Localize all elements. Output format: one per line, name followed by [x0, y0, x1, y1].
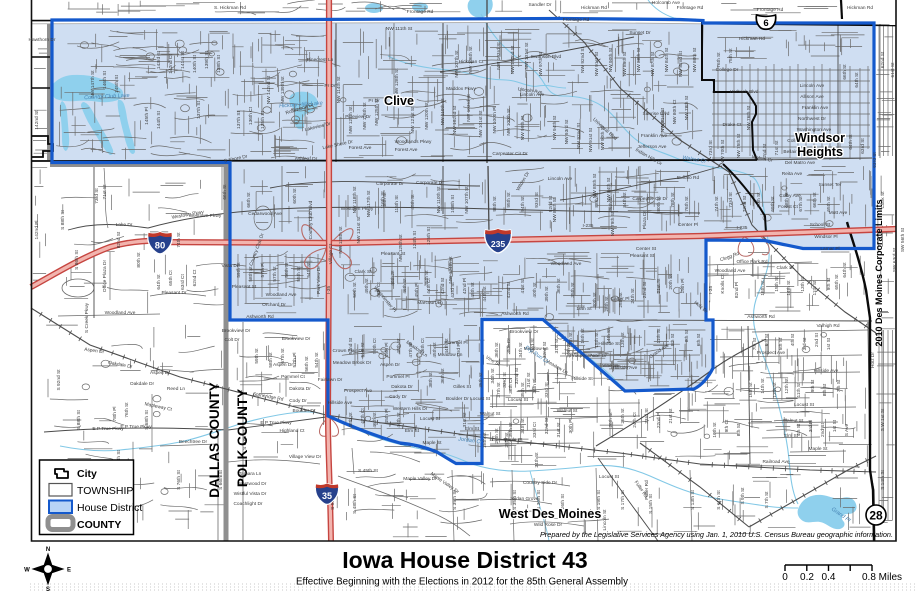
svg-text:Valhigh Rd: Valhigh Rd [816, 323, 839, 329]
svg-text:63rd St: 63rd St [860, 138, 866, 154]
svg-text:Drake Ct: Drake Ct [723, 122, 743, 128]
svg-text:74th St: 74th St [714, 196, 720, 212]
svg-text:140th St: 140th St [192, 54, 198, 73]
svg-text:62nd Ct: 62nd Ct [192, 269, 198, 286]
svg-text:Woodland Ave: Woodland Ave [105, 310, 136, 316]
svg-text:NW 78th St: NW 78th St [684, 95, 690, 120]
svg-text:0: 0 [782, 572, 788, 583]
svg-text:Pleasant St: Pleasant St [232, 284, 257, 290]
svg-text:86th St: 86th St [608, 196, 614, 212]
svg-text:Franklin Ave: Franklin Ave [802, 105, 829, 111]
svg-text:Ashworth Rd: Ashworth Rd [501, 311, 529, 317]
svg-text:I-235: I-235 [583, 223, 594, 229]
svg-text:Woodland Ave: Woodland Ave [266, 292, 297, 298]
svg-text:44th St: 44th St [482, 286, 488, 302]
svg-text:1st St: 1st St [826, 337, 832, 350]
svg-text:NW 93rd St: NW 93rd St [564, 119, 570, 144]
svg-text:15th St: 15th St [594, 332, 600, 348]
svg-text:43rd St: 43rd St [450, 282, 456, 298]
svg-text:S 45th St: S 45th St [358, 468, 378, 474]
svg-text:POLK COUNTY: POLK COUNTY [235, 389, 250, 487]
svg-text:S 48th St: S 48th St [352, 493, 358, 513]
svg-text:Coachlight Dr: Coachlight Dr [233, 501, 262, 507]
svg-text:135th St: 135th St [260, 110, 266, 129]
svg-text:35th Ct: 35th Ct [506, 338, 512, 354]
svg-text:NW 107th St: NW 107th St [454, 50, 460, 78]
svg-text:20th St: 20th St [668, 274, 674, 290]
svg-text:50th Ct: 50th Ct [372, 338, 378, 354]
svg-text:S. Hickman Rd: S. Hickman Rd [214, 5, 246, 11]
svg-text:66th St: 66th St [222, 184, 228, 200]
svg-text:Highland Ct: Highland Ct [279, 428, 305, 434]
svg-text:32nd St: 32nd St [514, 367, 520, 384]
svg-text:28: 28 [869, 509, 883, 523]
svg-text:S 76th St: S 76th St [176, 469, 182, 489]
svg-text:Corporate Dr: Corporate Dr [416, 180, 444, 186]
svg-text:Clark St: Clark St [776, 265, 794, 271]
svg-text:E P True Pkwy: E P True Pkwy [260, 420, 292, 426]
svg-text:NW 90th St: NW 90th St [608, 47, 614, 72]
svg-text:Aspen Dr: Aspen Dr [380, 362, 400, 368]
svg-text:80th St: 80th St [656, 196, 662, 212]
svg-text:24th St: 24th St [534, 452, 540, 468]
svg-text:64th St: 64th St [854, 72, 860, 88]
svg-text:125th St: 125th St [426, 226, 432, 245]
svg-text:11th St: 11th St [796, 382, 802, 398]
svg-text:Dakota Dr: Dakota Dr [391, 384, 413, 390]
svg-text:57th St: 57th St [272, 266, 278, 282]
svg-text:50th St: 50th St [352, 282, 358, 298]
svg-text:34th Pl: 34th Pl [532, 379, 538, 394]
svg-text:Walnut St: Walnut St [557, 408, 578, 414]
svg-text:65th St: 65th St [834, 274, 840, 290]
svg-text:19th Pl: 19th Pl [680, 279, 686, 294]
svg-text:Brookview Dr: Brookview Dr [510, 329, 539, 335]
svg-text:Plaza Dr: Plaza Dr [642, 210, 648, 229]
svg-text:Prospect Ave: Prospect Ave [344, 388, 373, 394]
svg-text:NW 87th St: NW 87th St [650, 51, 656, 76]
svg-text:S W 1st St: S W 1st St [880, 408, 886, 431]
svg-text:51st St: 51st St [360, 342, 366, 358]
svg-text:143rd St: 143rd St [156, 50, 162, 69]
svg-text:W: W [24, 568, 30, 574]
svg-text:SW 63rd St: SW 63rd St [892, 247, 898, 272]
svg-text:Frontage Rd: Frontage Rd [677, 5, 704, 11]
svg-text:146th St: 146th St [102, 70, 108, 89]
svg-text:33rd St: 33rd St [502, 372, 508, 388]
svg-text:10th St: 10th St [712, 422, 718, 438]
svg-text:16th St: 16th St [580, 328, 586, 344]
svg-text:Lincoln Ave: Lincoln Ave [800, 83, 825, 89]
svg-text:Gilles St: Gilles St [453, 384, 472, 390]
svg-text:142nd Ct: 142nd Ct [168, 54, 174, 74]
svg-text:137th St: 137th St [196, 100, 202, 119]
svg-text:31st St: 31st St [556, 422, 562, 438]
svg-text:Sunset Ter: Sunset Ter [819, 182, 842, 188]
svg-text:Dakota Dr: Dakota Dr [289, 386, 311, 392]
svg-text:34th St: 34th St [520, 418, 526, 434]
svg-text:73rd St: 73rd St [728, 192, 734, 208]
svg-text:Del Matro Ave: Del Matro Ave [785, 160, 815, 166]
svg-text:Hillside Ave: Hillside Ave [814, 368, 839, 374]
svg-text:42nd St: 42nd St [506, 281, 512, 298]
svg-text:Hawthorn Dr: Hawthorn Dr [29, 37, 56, 43]
svg-text:43rd Pl: 43rd Pl [456, 342, 462, 357]
svg-text:2nd St: 2nd St [820, 422, 826, 437]
svg-text:33rd St: 33rd St [544, 382, 550, 398]
svg-text:13th St: 13th St [800, 276, 806, 292]
svg-text:2nd St: 2nd St [814, 332, 820, 347]
svg-text:S 9th St: S 9th St [740, 487, 746, 505]
svg-text:Lincoln St: Lincoln St [602, 509, 608, 531]
svg-text:Western Hills Dr: Western Hills Dr [393, 406, 428, 412]
svg-text:NW 139th St: NW 139th St [280, 76, 286, 104]
svg-text:Carpenter Cir Dr: Carpenter Cir Dr [632, 196, 668, 202]
svg-text:6th St: 6th St [696, 333, 702, 346]
svg-text:Wild Rose Dr: Wild Rose Dr [534, 522, 563, 528]
svg-text:Northwest Dr: Northwest Dr [798, 116, 826, 122]
svg-text:Windsor: Windsor [795, 131, 845, 145]
svg-text:66th St: 66th St [246, 192, 252, 208]
svg-text:0.2: 0.2 [800, 572, 814, 583]
svg-text:NW 119th St: NW 119th St [440, 98, 446, 126]
svg-text:Knolls Ct: Knolls Ct [720, 274, 726, 294]
svg-text:NW 142nd St: NW 142nd St [266, 75, 272, 104]
svg-text:E: E [67, 568, 71, 574]
svg-text:NW 94th St: NW 94th St [552, 115, 558, 140]
svg-text:Pr Dr: Pr Dr [324, 83, 336, 89]
svg-text:64th St: 64th St [156, 274, 162, 290]
svg-text:I-35: I-35 [326, 286, 332, 295]
svg-text:S 13th St: S 13th St [690, 489, 696, 509]
svg-text:Ashleaf Dr: Ashleaf Dr [295, 156, 318, 162]
svg-text:Prepared by the Legislative Se: Prepared by the Legislative Services Age… [540, 530, 893, 539]
svg-text:48th St: 48th St [348, 412, 354, 428]
svg-text:Village Ct: Village Ct [328, 243, 334, 264]
svg-text:Maple St: Maple St [809, 446, 829, 452]
svg-text:74th St: 74th St [176, 232, 182, 248]
svg-text:34th St: 34th St [490, 368, 496, 384]
svg-text:95th St: 95th St [506, 192, 512, 208]
svg-text:S 11th St: S 11th St [716, 490, 722, 510]
svg-text:15th St: 15th St [774, 276, 780, 292]
svg-text:NW 88th St: NW 88th St [636, 47, 642, 72]
svg-text:Fairlawn Dr: Fairlawn Dr [318, 377, 343, 383]
svg-text:Village View Dr: Village View Dr [289, 454, 322, 460]
svg-text:Office Plaza Dr: Office Plaza Dr [102, 260, 108, 293]
svg-text:Locust St: Locust St [794, 402, 815, 408]
svg-text:S 17th St: S 17th St [620, 489, 626, 509]
svg-text:54th St: 54th St [306, 262, 312, 278]
svg-text:93rd St: 93rd St [534, 192, 540, 208]
svg-text:42nd Pl: 42nd Pl [462, 278, 468, 294]
svg-text:137th St: 137th St [236, 110, 242, 129]
svg-text:0.4: 0.4 [822, 572, 836, 583]
svg-text:Maddox Pkwy: Maddox Pkwy [446, 86, 476, 92]
svg-text:Swanson Blvd: Swanson Blvd [531, 54, 562, 60]
svg-text:57th St: 57th St [280, 348, 286, 364]
svg-text:NW 101st St: NW 101st St [524, 42, 530, 70]
svg-text:Sunset Dr: Sunset Dr [629, 30, 651, 36]
svg-text:26th St: 26th St [608, 412, 614, 428]
svg-text:115th St: 115th St [394, 195, 400, 213]
svg-text:NW 84th St: NW 84th St [664, 47, 670, 72]
svg-text:Pommel Pl: Pommel Pl [386, 374, 409, 380]
svg-text:S 92nd St: S 92nd St [56, 369, 62, 391]
svg-text:41st St: 41st St [520, 278, 526, 294]
svg-text:Center St: Center St [636, 246, 657, 252]
svg-text:Pleasant St: Pleasant St [630, 253, 655, 259]
svg-text:Frontage Rd: Frontage Rd [407, 9, 434, 15]
svg-text:Cedarwood Ave: Cedarwood Ave [248, 211, 282, 217]
svg-text:38th St: 38th St [428, 372, 434, 388]
svg-text:145th St: 145th St [114, 74, 120, 93]
svg-text:11th St: 11th St [656, 328, 662, 344]
svg-text:Hickman Rd: Hickman Rd [847, 5, 873, 11]
svg-text:Hillside Ave: Hillside Ave [328, 400, 353, 406]
svg-text:Hickman Rd: Hickman Rd [581, 5, 607, 11]
svg-text:32nd St: 32nd St [544, 417, 550, 434]
svg-text:44th St: 44th St [396, 412, 402, 428]
svg-text:8th St: 8th St [684, 329, 690, 342]
svg-text:63rd Ct: 63rd Ct [180, 273, 186, 289]
svg-text:21st St: 21st St [668, 408, 674, 424]
svg-text:75th St: 75th St [728, 48, 734, 64]
svg-text:Aspen Dr: Aspen Dr [150, 370, 170, 376]
svg-text:Locust St: Locust St [599, 474, 620, 480]
svg-text:Holcomb Ave: Holcomb Ave [652, 0, 681, 6]
svg-text:142nd Pl: 142nd Pl [34, 221, 40, 240]
svg-text:NW 106th St: NW 106th St [468, 46, 474, 74]
svg-text:I-235: I-235 [737, 225, 748, 231]
svg-text:NW 99th St: NW 99th St [520, 115, 526, 140]
svg-text:Lake Dr: Lake Dr [116, 222, 133, 228]
svg-text:56th St: 56th St [284, 262, 290, 278]
svg-text:I-35: I-35 [708, 286, 714, 295]
svg-text:22nd St: 22nd St [642, 281, 648, 298]
svg-text:76th St: 76th St [124, 402, 130, 418]
svg-text:145th Pl: 145th Pl [144, 107, 150, 125]
svg-text:DALLAS COUNTY: DALLAS COUNTY [207, 382, 222, 498]
svg-text:46th St: 46th St [402, 278, 408, 294]
svg-text:84th St: 84th St [622, 192, 628, 208]
svg-text:Frontage Rd: Frontage Rd [563, 17, 590, 23]
svg-text:36th Ct: 36th Ct [508, 378, 514, 394]
svg-text:16th St: 16th St [760, 280, 766, 296]
svg-text:9th St: 9th St [826, 277, 832, 290]
svg-text:8th St: 8th St [822, 383, 828, 396]
svg-text:Center Pl: Center Pl [678, 222, 698, 228]
svg-text:NW 81st St: NW 81st St [660, 107, 666, 132]
svg-text:35th St: 35th St [508, 422, 514, 438]
svg-text:235: 235 [491, 239, 506, 249]
svg-text:23rd St: 23rd St [644, 408, 650, 424]
svg-text:S 86th St: S 86th St [74, 249, 80, 269]
svg-text:78th Pl: 78th Pl [112, 407, 118, 422]
svg-text:Office Park Rd: Office Park Rd [736, 259, 767, 265]
svg-text:28th St: 28th St [482, 432, 488, 448]
svg-text:88th St: 88th St [594, 192, 600, 208]
svg-text:S 88th St: S 88th St [60, 209, 66, 229]
svg-text:35: 35 [322, 491, 332, 501]
svg-text:55th St: 55th St [296, 266, 302, 282]
svg-text:31st St: 31st St [554, 338, 560, 354]
svg-text:25th St: 25th St [620, 408, 626, 424]
svg-text:31st St: 31st St [526, 372, 532, 388]
svg-text:S 68th St: S 68th St [144, 409, 150, 429]
svg-text:3rd St: 3rd St [802, 337, 808, 350]
svg-text:NW 103rd St: NW 103rd St [466, 94, 472, 122]
svg-text:108th St: 108th St [450, 194, 456, 213]
svg-text:Boulder Dr: Boulder Dr [293, 408, 316, 414]
svg-text:6th St: 6th St [764, 333, 770, 346]
svg-text:S 14th St: S 14th St [880, 469, 886, 489]
svg-text:Reita Ave: Reita Ave [782, 171, 803, 177]
svg-text:47th Ct: 47th Ct [360, 408, 366, 424]
svg-text:NW 124th St: NW 124th St [448, 256, 454, 284]
svg-text:94th St: 94th St [520, 196, 526, 212]
svg-text:14th St: 14th St [786, 280, 792, 296]
svg-text:Railroad Ave: Railroad Ave [762, 459, 789, 465]
svg-text:Colt Dr: Colt Dr [225, 337, 240, 343]
svg-text:NW 97th St: NW 97th St [538, 51, 544, 76]
svg-text:NW 107th St: NW 107th St [464, 186, 470, 214]
svg-text:NW 76th St: NW 76th St [746, 105, 752, 130]
svg-text:NW 125th St: NW 125th St [398, 234, 404, 262]
svg-text:67th St: 67th St [798, 196, 804, 212]
svg-text:139th St: 139th St [204, 50, 210, 69]
svg-text:45th Pl: 45th Pl [414, 283, 420, 298]
svg-text:36th St: 36th St [440, 368, 446, 384]
svg-text:58th St: 58th St [248, 266, 254, 282]
svg-text:Locust St: Locust St [420, 416, 441, 422]
svg-text:NW 92nd St: NW 92nd St [580, 46, 586, 73]
svg-text:Windsor Pl: Windsor Pl [814, 234, 837, 240]
svg-text:144th St: 144th St [156, 110, 162, 129]
svg-text:0.8 Miles: 0.8 Miles [862, 572, 902, 583]
svg-text:69th St: 69th St [770, 196, 776, 212]
svg-text:63rd St: 63rd St [872, 152, 878, 168]
svg-text:14th St: 14th St [606, 328, 612, 344]
svg-text:73rd St: 73rd St [94, 188, 100, 204]
svg-text:35th St: 35th St [478, 372, 484, 388]
svg-text:64th St: 64th St [848, 134, 854, 150]
svg-text:S Creek Pkwy: S Creek Pkwy [84, 302, 90, 333]
svg-text:NW 111th St: NW 111th St [386, 26, 413, 32]
svg-text:49th St: 49th St [364, 278, 370, 294]
svg-text:NW 102nd St: NW 102nd St [452, 105, 458, 134]
svg-text:Franklin Ave: Franklin Ave [641, 133, 668, 139]
svg-text:16th St: 16th St [748, 382, 754, 398]
svg-text:54th St: 54th St [314, 352, 320, 368]
svg-text:Effective Beginning with the E: Effective Beginning with the Elections i… [296, 577, 628, 588]
svg-text:Oakdale Dr: Oakdale Dr [130, 381, 155, 387]
svg-text:57th Pl: 57th Pl [260, 263, 266, 278]
svg-text:76th St: 76th St [684, 196, 690, 212]
svg-text:NW 128th St: NW 128th St [338, 226, 344, 254]
svg-text:NW 75th St: NW 75th St [736, 133, 742, 158]
svg-text:68th St: 68th St [784, 192, 790, 208]
svg-text:45th St: 45th St [410, 194, 416, 210]
svg-text:Pinecrest Ln: Pinecrest Ln [307, 57, 334, 63]
svg-text:28th St: 28th St [604, 296, 610, 312]
svg-text:49th Pl: 49th Pl [384, 343, 390, 358]
svg-text:30th St: 30th St [592, 292, 598, 308]
svg-text:45th Pl: 45th Pl [384, 409, 390, 424]
svg-text:NW 89th St: NW 89th St [622, 51, 628, 76]
svg-text:NW 82nd St: NW 82nd St [678, 50, 684, 77]
svg-text:NW 100th Pl: NW 100th Pl [492, 107, 498, 134]
svg-text:NW 91st St: NW 91st St [588, 127, 594, 152]
svg-text:82nd St: 82nd St [116, 231, 122, 248]
svg-text:39th St: 39th St [544, 286, 550, 302]
svg-text:48th St: 48th St [396, 338, 402, 354]
svg-text:73rd St: 73rd St [708, 140, 714, 156]
svg-text:Ashworth Rd: Ashworth Rd [747, 314, 775, 320]
svg-text:35th St: 35th St [520, 382, 526, 398]
svg-text:Brookview Dr: Brookview Dr [282, 336, 311, 342]
svg-text:S 88th St: S 88th St [76, 409, 82, 429]
svg-text:TOWNSHIP: TOWNSHIP [77, 485, 133, 497]
svg-text:136th Ct: 136th Ct [248, 106, 254, 125]
svg-text:12th St: 12th St [784, 378, 790, 394]
svg-text:NW 101st St: NW 101st St [478, 110, 484, 138]
svg-text:West Des Moines: West Des Moines [499, 507, 602, 521]
svg-text:Maple St: Maple St [423, 440, 443, 446]
svg-text:33rd Ct: 33rd Ct [532, 421, 538, 437]
svg-text:48th St: 48th St [390, 270, 396, 286]
svg-text:56th St: 56th St [304, 356, 310, 372]
svg-text:NW 103rd St: NW 103rd St [496, 42, 502, 70]
svg-text:92nd St: 92nd St [548, 195, 554, 212]
svg-text:Hickman Rd: Hickman Rd [347, 0, 373, 2]
svg-text:Orchard Dr: Orchard Dr [262, 302, 286, 308]
svg-text:Holz Dr: Holz Dr [870, 352, 876, 368]
svg-text:NW 110th St: NW 110th St [436, 186, 442, 214]
svg-text:58th St: 58th St [268, 352, 274, 368]
svg-text:60th St: 60th St [292, 188, 298, 204]
svg-text:16th St: 16th St [576, 306, 592, 312]
svg-text:Country Club Blvd: Country Club Blvd [308, 200, 314, 239]
svg-text:Boulder Dr Locust St: Boulder Dr Locust St [446, 396, 491, 402]
svg-text:Woodland Ave: Woodland Ave [551, 261, 582, 267]
svg-text:NW 102nd St: NW 102nd St [510, 45, 516, 74]
svg-text:4th St: 4th St [790, 333, 796, 346]
svg-text:Lincoln Ave: Lincoln Ave [548, 176, 573, 182]
svg-text:57th Pl: 57th Pl [292, 353, 298, 368]
svg-text:S Ave: S Ave [844, 423, 850, 436]
svg-text:142nd St: 142nd St [34, 110, 40, 130]
svg-text:Country Side Dr: Country Side Dr [523, 480, 558, 486]
svg-text:NW 118th St: NW 118th St [352, 186, 358, 214]
svg-text:SW 56th St: SW 56th St [900, 227, 906, 252]
svg-text:School St: School St [810, 222, 831, 228]
svg-text:NW 128th St: NW 128th St [394, 68, 400, 96]
svg-text:S: S [46, 587, 50, 591]
svg-text:21st St: 21st St [656, 278, 662, 294]
svg-text:3rd Pl: 3rd Pl [808, 420, 814, 433]
svg-text:Elm St: Elm St [405, 428, 420, 434]
svg-text:Hickman Rd: Hickman Rd [739, 36, 765, 42]
svg-text:NW 79th St: NW 79th St [610, 211, 616, 236]
svg-text:Beechtree Dr: Beechtree Dr [179, 439, 208, 445]
svg-text:City: City [77, 468, 97, 480]
svg-text:NW 92nd St: NW 92nd St [576, 122, 582, 149]
svg-text:35th St: 35th St [570, 282, 576, 298]
svg-text:80: 80 [155, 240, 166, 251]
svg-text:NW 100th St: NW 100th St [506, 108, 512, 136]
svg-text:9th St: 9th St [670, 333, 676, 346]
